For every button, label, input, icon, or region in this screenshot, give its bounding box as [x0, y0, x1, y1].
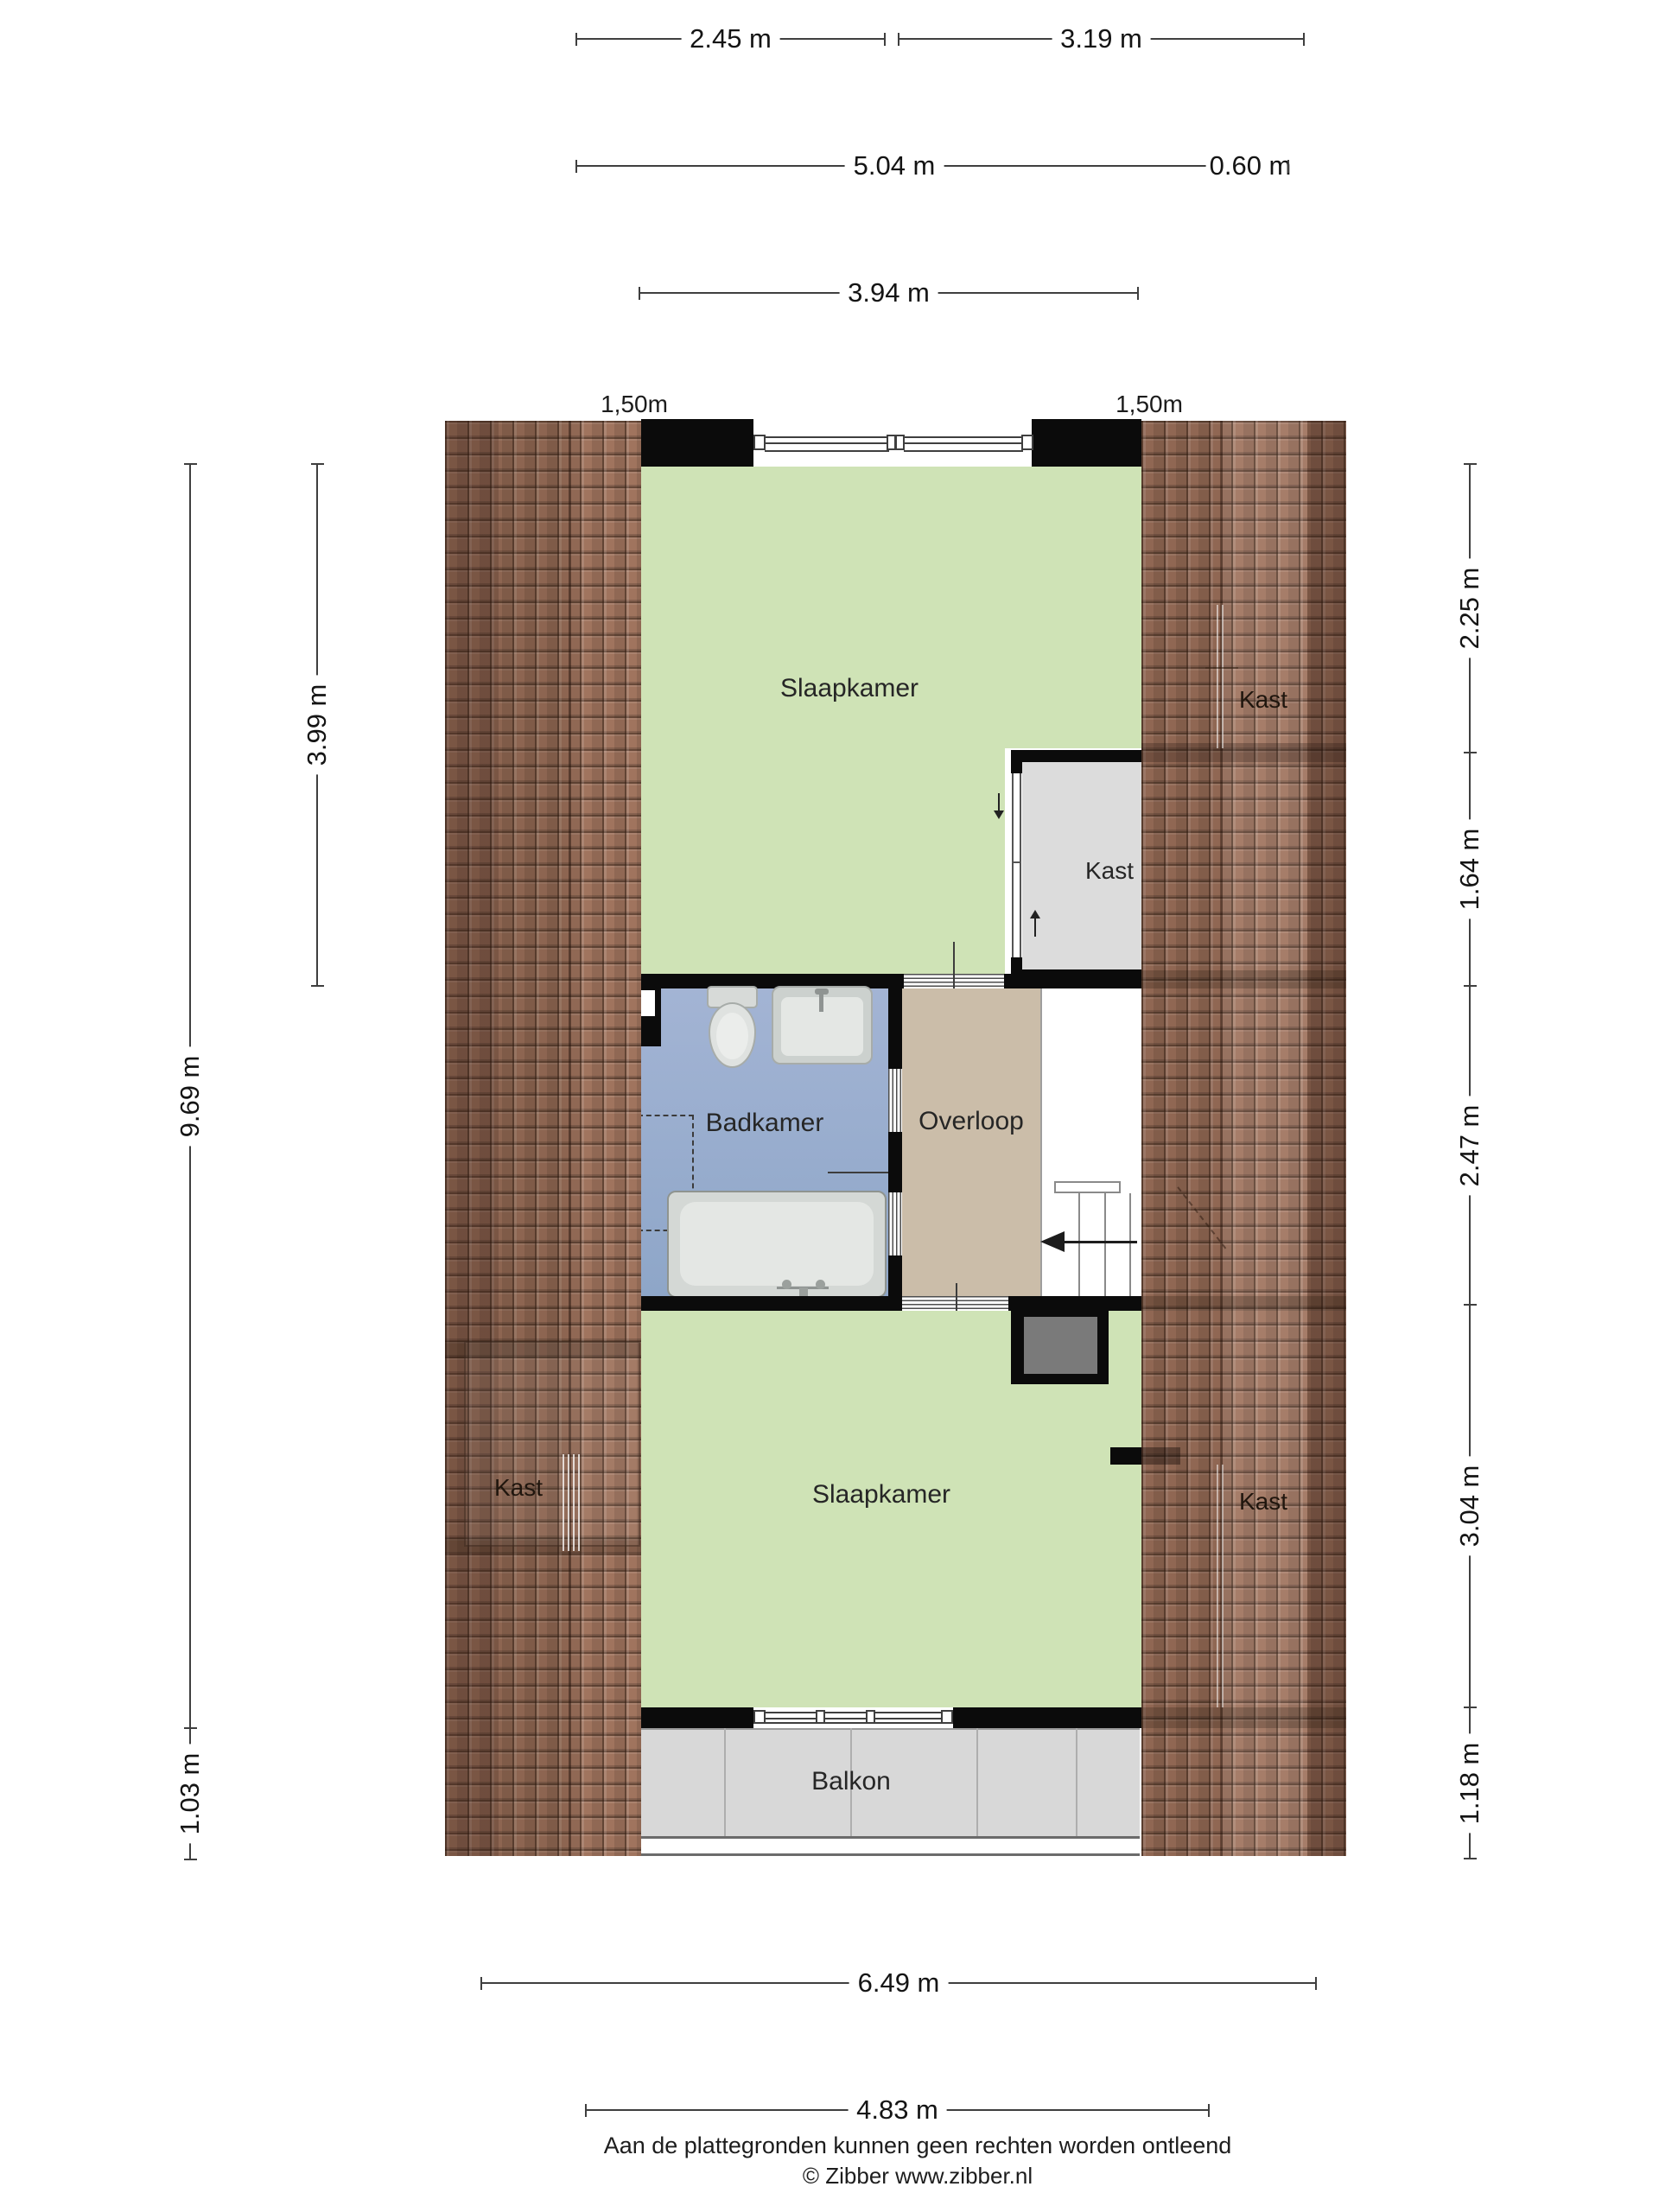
south-window-jamb-left [753, 1710, 766, 1724]
bedroom-top-floor [641, 467, 1141, 748]
arrow-down-icon [998, 793, 1000, 812]
mid-south-wall-left [641, 1296, 902, 1311]
dim-top-left-label: 2.45 m [681, 23, 780, 54]
balcony-label: Balkon [811, 1767, 891, 1796]
dim-bottom-outer: 6.49 m [481, 1982, 1316, 1984]
stair-landing-step [1054, 1181, 1121, 1193]
dim-mid-offset: 0.60 m [1212, 165, 1288, 167]
south-window-mullion-b [866, 1710, 875, 1724]
bathroom-door-upper [888, 1069, 902, 1132]
bathroom-label: Badkamer [706, 1109, 824, 1138]
north-wall-right [1032, 419, 1141, 467]
dim-top-right-label: 3.19 m [1052, 23, 1151, 54]
closet-door-jamb-bottom [1011, 957, 1022, 969]
closet-wall-top [1011, 750, 1141, 762]
stair-tread-2 [1104, 1193, 1106, 1296]
dim-right-3: 2.47 m [1469, 986, 1471, 1305]
dim-mid-width: 5.04 m [576, 165, 1212, 167]
dim-right-4-label: 3.04 m [1454, 1457, 1485, 1556]
dim-right-5-label: 1.18 m [1454, 1733, 1485, 1833]
closet-room-label: Kast [1085, 857, 1134, 885]
south-window-mullion-a [816, 1710, 825, 1724]
mid-north-wall-right [1004, 974, 1141, 988]
closet-roof-top-right-label: Kast [1239, 686, 1287, 714]
closet-roof-bottom-right-label: Kast [1239, 1488, 1287, 1516]
balcony-joint-4 [1076, 1728, 1077, 1836]
south-wall-right [953, 1707, 1141, 1728]
north-window-jamb-left [753, 435, 766, 450]
south-window-glazing-a [765, 1712, 817, 1724]
arrow-down-head-icon [994, 810, 1004, 819]
dim-bottom-inner: 4.83 m [586, 2109, 1209, 2111]
dim-left-balcony-label: 1.03 m [175, 1745, 206, 1844]
balcony-joint-1 [724, 1728, 726, 1836]
toilet-seat [716, 1013, 748, 1059]
knee-height-left-label: 1,50m [601, 391, 668, 418]
dim-top-left: 2.45 m [576, 38, 885, 40]
floorplan-canvas: Kast [0, 0, 1659, 2212]
dim-inner-width-label: 3.94 m [839, 277, 938, 308]
dim-inner-width: 3.94 m [639, 292, 1138, 294]
dim-bottom-outer-label: 6.49 m [849, 1967, 949, 1999]
dim-right-2: 1.64 m [1469, 753, 1471, 986]
dim-right-5: 1.18 m [1469, 1707, 1471, 1859]
bathtub-faucet-knob-right-icon [816, 1280, 825, 1289]
closet-roof-left-label: Kast [494, 1474, 543, 1502]
knee-height-right-label: 1,50m [1116, 391, 1183, 418]
bathroom-door-leaf [828, 1172, 888, 1173]
landing-label: Overloop [918, 1107, 1024, 1136]
knee-wall-stub [1110, 1447, 1141, 1465]
north-window-glazing-right [904, 436, 1023, 452]
south-wall-left [641, 1707, 753, 1728]
dim-left-total-label: 9.69 m [175, 1046, 206, 1146]
north-window-mullion-b [895, 435, 905, 450]
dim-right-2-label: 1.64 m [1454, 820, 1485, 919]
dim-left-balcony: 1.03 m [189, 1728, 191, 1859]
closet-sliding-door-divider [1012, 861, 1021, 863]
north-wall-left [641, 419, 753, 467]
roof-left-strip [445, 421, 641, 1856]
south-window-glazing-b [821, 1712, 867, 1724]
dim-bottom-inner-label: 4.83 m [848, 2094, 947, 2126]
bedroom-bottom-label: Slaapkamer [812, 1480, 950, 1510]
dim-left-bedroom-label: 3.99 m [302, 676, 333, 775]
sink-faucet-spout-icon [819, 995, 823, 1012]
bathroom-door-lower [888, 1192, 902, 1255]
bathtub-faucet-knob-left-icon [782, 1280, 791, 1289]
stair-tread-1 [1078, 1193, 1080, 1296]
bedroom-top-floor-lower [641, 748, 1005, 974]
balcony-railing [641, 1836, 1140, 1856]
bedroom-top-label: Slaapkamer [780, 674, 918, 703]
dim-left-total: 9.69 m [189, 464, 191, 1728]
dim-right-1-label: 2.25 m [1454, 559, 1485, 658]
stair-direction-line [1065, 1241, 1137, 1243]
dim-right-3-label: 2.47 m [1454, 1096, 1485, 1195]
stair-tread-3 [1129, 1193, 1131, 1296]
south-window-jamb-right [941, 1710, 953, 1724]
dim-mid-width-label: 5.04 m [845, 150, 944, 181]
dim-left-bedroom: 3.99 m [316, 464, 318, 986]
closet-sliding-door [1012, 773, 1021, 957]
dim-right-4: 3.04 m [1469, 1305, 1471, 1707]
dim-top-right: 3.19 m [899, 38, 1304, 40]
landing-floor [902, 988, 1040, 1296]
disclaimer-text: Aan de plattegronden kunnen geen rechten… [604, 2133, 1232, 2159]
north-window-jamb-right [1021, 435, 1033, 450]
bathroom-corner-niche [641, 990, 655, 1016]
dim-right-1: 2.25 m [1469, 464, 1471, 753]
arrow-up-icon [1034, 918, 1036, 937]
bathtub-basin [680, 1202, 874, 1286]
south-window-glazing-c [871, 1712, 942, 1724]
dim-mid-offset-label: 0.60 m [1206, 150, 1295, 181]
roof-right-strip [1141, 421, 1346, 1856]
chimney-duct [1024, 1317, 1097, 1374]
copyright-text: © Zibber www.zibber.nl [803, 2163, 1033, 2190]
balcony-joint-3 [976, 1728, 978, 1836]
closet-door-jamb-top [1011, 762, 1022, 773]
north-window-glazing-left [765, 436, 889, 452]
stair-direction-arrow-icon [1040, 1231, 1065, 1252]
sink-faucet-icon [815, 988, 829, 995]
